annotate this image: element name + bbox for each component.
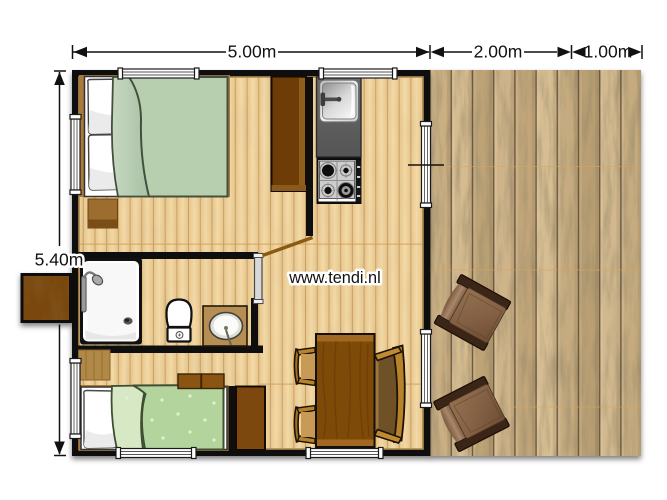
svg-text:1.00m: 1.00m bbox=[584, 42, 633, 62]
svg-text:5.00m: 5.00m bbox=[228, 42, 277, 62]
svg-text:5.40m: 5.40m bbox=[35, 250, 84, 270]
svg-text:www.tendi.nl: www.tendi.nl bbox=[288, 269, 380, 287]
svg-text:2.00m: 2.00m bbox=[474, 42, 523, 62]
